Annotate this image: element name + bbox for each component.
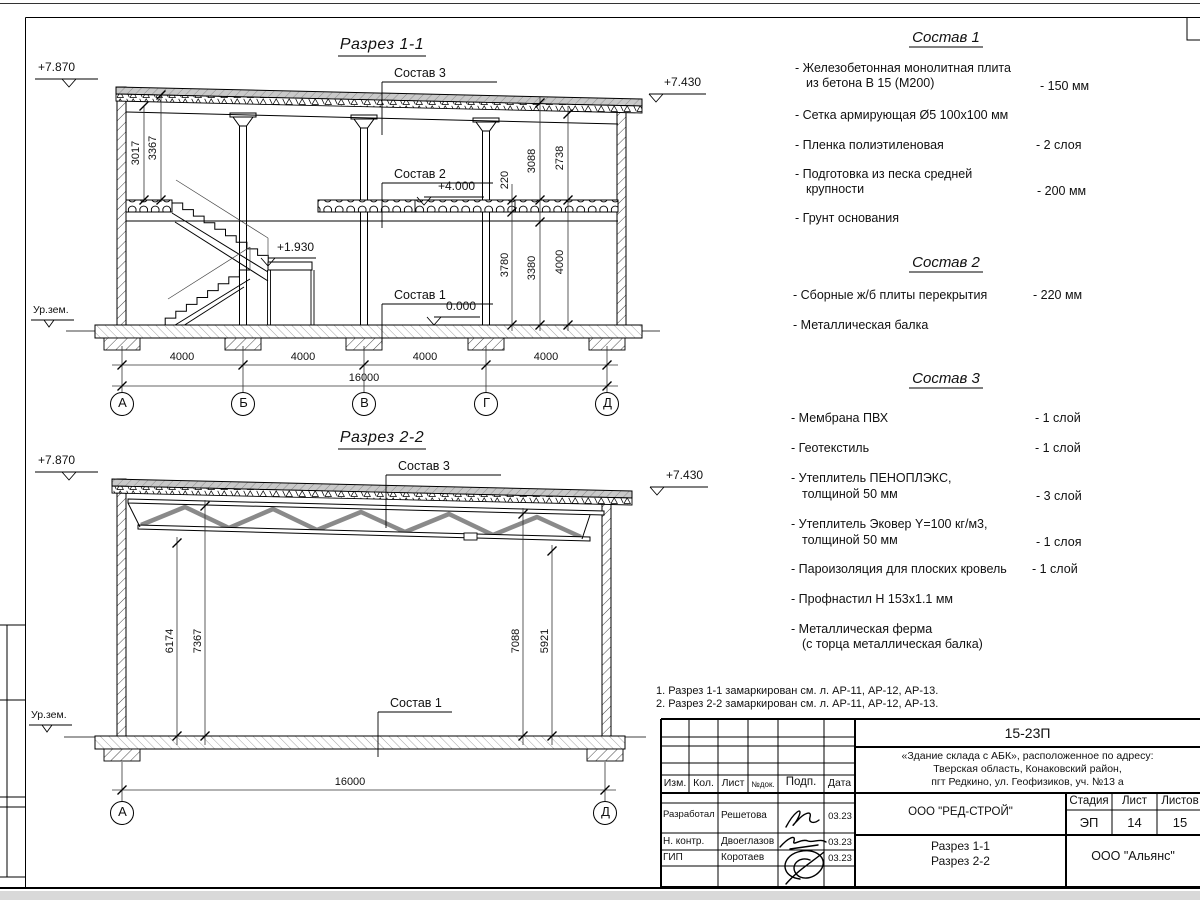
titleblock-name-1: Решетова (721, 810, 767, 822)
dim-3780: 3780 (499, 235, 513, 295)
drawing-sheet: Разрез 1-1 +7.870 +7.430 Состав 3 Состав… (0, 0, 1200, 900)
comp3-item4-line1: - Утеплитель Эковер Y=100 кг/м3, (791, 517, 987, 531)
comp1-item2: - Сетка армирующая Ø5 100х100 мм (795, 108, 1008, 122)
comp2-item1: - Сборные ж/б плиты перекрытия (793, 288, 987, 302)
dim-bay-4: 4000 (516, 351, 576, 364)
titleblock-sheets-header: Листов (1157, 795, 1200, 808)
comp1-item5: - Грунт основания (795, 211, 899, 225)
dim-5921: 5921 (539, 611, 553, 671)
titleblock-project-line3: пгт Редкино, ул. Геофизиков, уч. №13 а (858, 776, 1197, 788)
comp3-item3-value: - 3 слой (1036, 489, 1082, 503)
dim-total-s22: 16000 (320, 776, 380, 789)
elevation-0000: 0.000 (446, 300, 476, 314)
dim-7088: 7088 (510, 611, 524, 671)
axis-d-s11: Д (596, 396, 619, 411)
dim-bay-3: 4000 (395, 351, 455, 364)
comp3-item3-line1: - Утеплитель ПЕНОПЛЭКС, (791, 471, 951, 485)
dim-4000-vert: 4000 (554, 232, 568, 292)
dim-3088: 3088 (526, 131, 540, 191)
note-2: 2. Разрез 2-2 замаркирован см. л. АР-11,… (656, 698, 938, 711)
leader-sostav3-s22: Состав 3 (398, 459, 450, 473)
comp3-item2: - Геотекстиль (791, 441, 869, 455)
leader-sostav3-s11: Состав 3 (394, 66, 446, 80)
titleblock-project-line2: Тверская область, Конаковский район, (858, 763, 1197, 775)
titleblock-sheet-header: Лист (1112, 795, 1157, 808)
titleblock-date-1: 03.23 (826, 812, 854, 823)
ground-level-label-s22: Ур.зем. (31, 709, 67, 721)
titleblock-firm: ООО "Альянс" (1068, 849, 1198, 863)
signatures (780, 811, 826, 884)
elevation-7430-s11: +7.430 (664, 76, 701, 90)
axis-d-s22: Д (594, 805, 617, 820)
dim-3380: 3380 (526, 238, 540, 298)
comp3-item5-value: - 1 слой (1032, 562, 1078, 576)
section-2-2-title: Разрез 2-2 (312, 429, 452, 447)
comp1-item1-value: - 150 мм (1040, 79, 1089, 93)
elevation-1930: +1.930 (277, 241, 314, 255)
comp3-title: Состав 3 (876, 370, 1016, 387)
titleblock-role-1: Разработал (663, 810, 715, 821)
comp1-item1-line1: - Железобетонная монолитная плита (795, 61, 1011, 75)
titleblock-stage-header: Стадия (1066, 795, 1112, 808)
comp1-title: Состав 1 (876, 29, 1016, 46)
ground-level-label-s11: Ур.зем. (33, 304, 69, 316)
titleblock-date-3: 03.23 (826, 854, 854, 865)
titleblock-stage-value: ЭП (1066, 816, 1112, 831)
note-1: 1. Разрез 1-1 замаркирован см. л. АР-11,… (656, 685, 938, 698)
titleblock-content-line1: Разрез 1-1 (856, 840, 1065, 854)
comp1-item3-value: - 2 слоя (1036, 138, 1081, 152)
axis-a-s11: А (111, 396, 134, 411)
composition-underlines (909, 47, 983, 388)
section-1-1-title: Разрез 1-1 (312, 36, 452, 54)
comp3-item7-line2: (с торца металлическая балка) (802, 637, 983, 651)
axis-b-s11: Б (232, 396, 255, 411)
axis-a-s22: А (111, 805, 134, 820)
dim-220: 220 (499, 150, 513, 210)
titleblock-header-izm: Изм. (661, 777, 689, 789)
dim-3367: 3367 (147, 118, 161, 178)
comp2-item1-value: - 220 мм (1033, 288, 1082, 302)
signature-korotaev (785, 851, 824, 884)
comp3-item2-value: - 1 слой (1035, 441, 1081, 455)
comp3-item1-value: - 1 слой (1035, 411, 1081, 425)
comp3-item6: - Профнастил Н 153х1.1 мм (791, 592, 953, 606)
titleblock-date-2: 03.23 (826, 838, 854, 849)
titleblock-sheet-value: 14 (1112, 816, 1157, 831)
comp1-item4-value: - 200 мм (1037, 184, 1086, 198)
comp2-title: Состав 2 (876, 254, 1016, 271)
titleblock-role-2: Н. контр. (663, 836, 704, 848)
titleblock-name-2: Двоеглазов (721, 836, 774, 848)
comp3-item5: - Пароизоляция для плоских кровель (791, 562, 1007, 576)
signature-dvoeglazov (780, 837, 826, 849)
elevation-7870-s22: +7.870 (38, 454, 75, 468)
comp3-item7-line1: - Металлическая ферма (791, 622, 932, 636)
dim-3017: 3017 (130, 123, 144, 183)
section-2-2-structure (64, 479, 646, 761)
axis-g-s11: Г (475, 396, 498, 411)
comp1-item4-line2: крупности (806, 182, 864, 196)
leader-sostav1-s11: Состав 1 (394, 288, 446, 302)
signature-reshetova (786, 811, 819, 827)
titleblock-role-3: ГИП (663, 852, 683, 864)
elevation-4000: +4.000 (438, 180, 475, 194)
dim-total-s11: 16000 (334, 372, 394, 385)
elevation-7430-s22: +7.430 (666, 469, 703, 483)
elevation-7870-s11: +7.870 (38, 61, 75, 75)
titleblock-doc-number: 15-23П (860, 725, 1195, 741)
comp1-item1-line2: из бетона В 15 (М200) (806, 76, 934, 90)
titleblock-header-list: Лист (718, 777, 748, 789)
comp3-item4-value: - 1 слоя (1036, 535, 1081, 549)
titleblock-org: ООО "РЕД-СТРОЙ" (856, 806, 1065, 819)
dim-6174: 6174 (164, 611, 178, 671)
comp3-item4-line2: толщиной 50 мм (802, 533, 898, 547)
titleblock-header-data: Дата (824, 777, 855, 789)
titleblock-sheets-value: 15 (1157, 816, 1200, 831)
comp3-item1: - Мембрана ПВХ (791, 411, 888, 425)
comp1-item3: - Пленка полиэтиленовая (795, 138, 944, 152)
roof-truss (128, 499, 604, 541)
titleblock-header-kol: Кол. (689, 777, 718, 789)
dim-7367: 7367 (192, 611, 206, 671)
titleblock-header-ndok: №док. (748, 780, 778, 789)
leader-sostav1-s22: Состав 1 (390, 696, 442, 710)
dim-bay-1: 4000 (152, 351, 212, 364)
axis-v-s11: В (353, 396, 376, 411)
comp1-item4-line1: - Подготовка из песка средней (795, 167, 972, 181)
dim-bay-2: 4000 (273, 351, 333, 364)
titleblock-project-line1: «Здание склада с АБК», расположенное по … (858, 750, 1197, 762)
titleblock-name-3: Коротаев (721, 852, 764, 864)
stairs (165, 180, 312, 333)
titleblock-content-line2: Разрез 2-2 (856, 855, 1065, 869)
comp2-item2: - Металлическая балка (793, 318, 928, 332)
left-margin-table (0, 625, 25, 877)
comp3-item3-line2: толщиной 50 мм (802, 487, 898, 501)
dim-2738: 2738 (554, 128, 568, 188)
titleblock-header-podp: Подп. (778, 776, 824, 789)
